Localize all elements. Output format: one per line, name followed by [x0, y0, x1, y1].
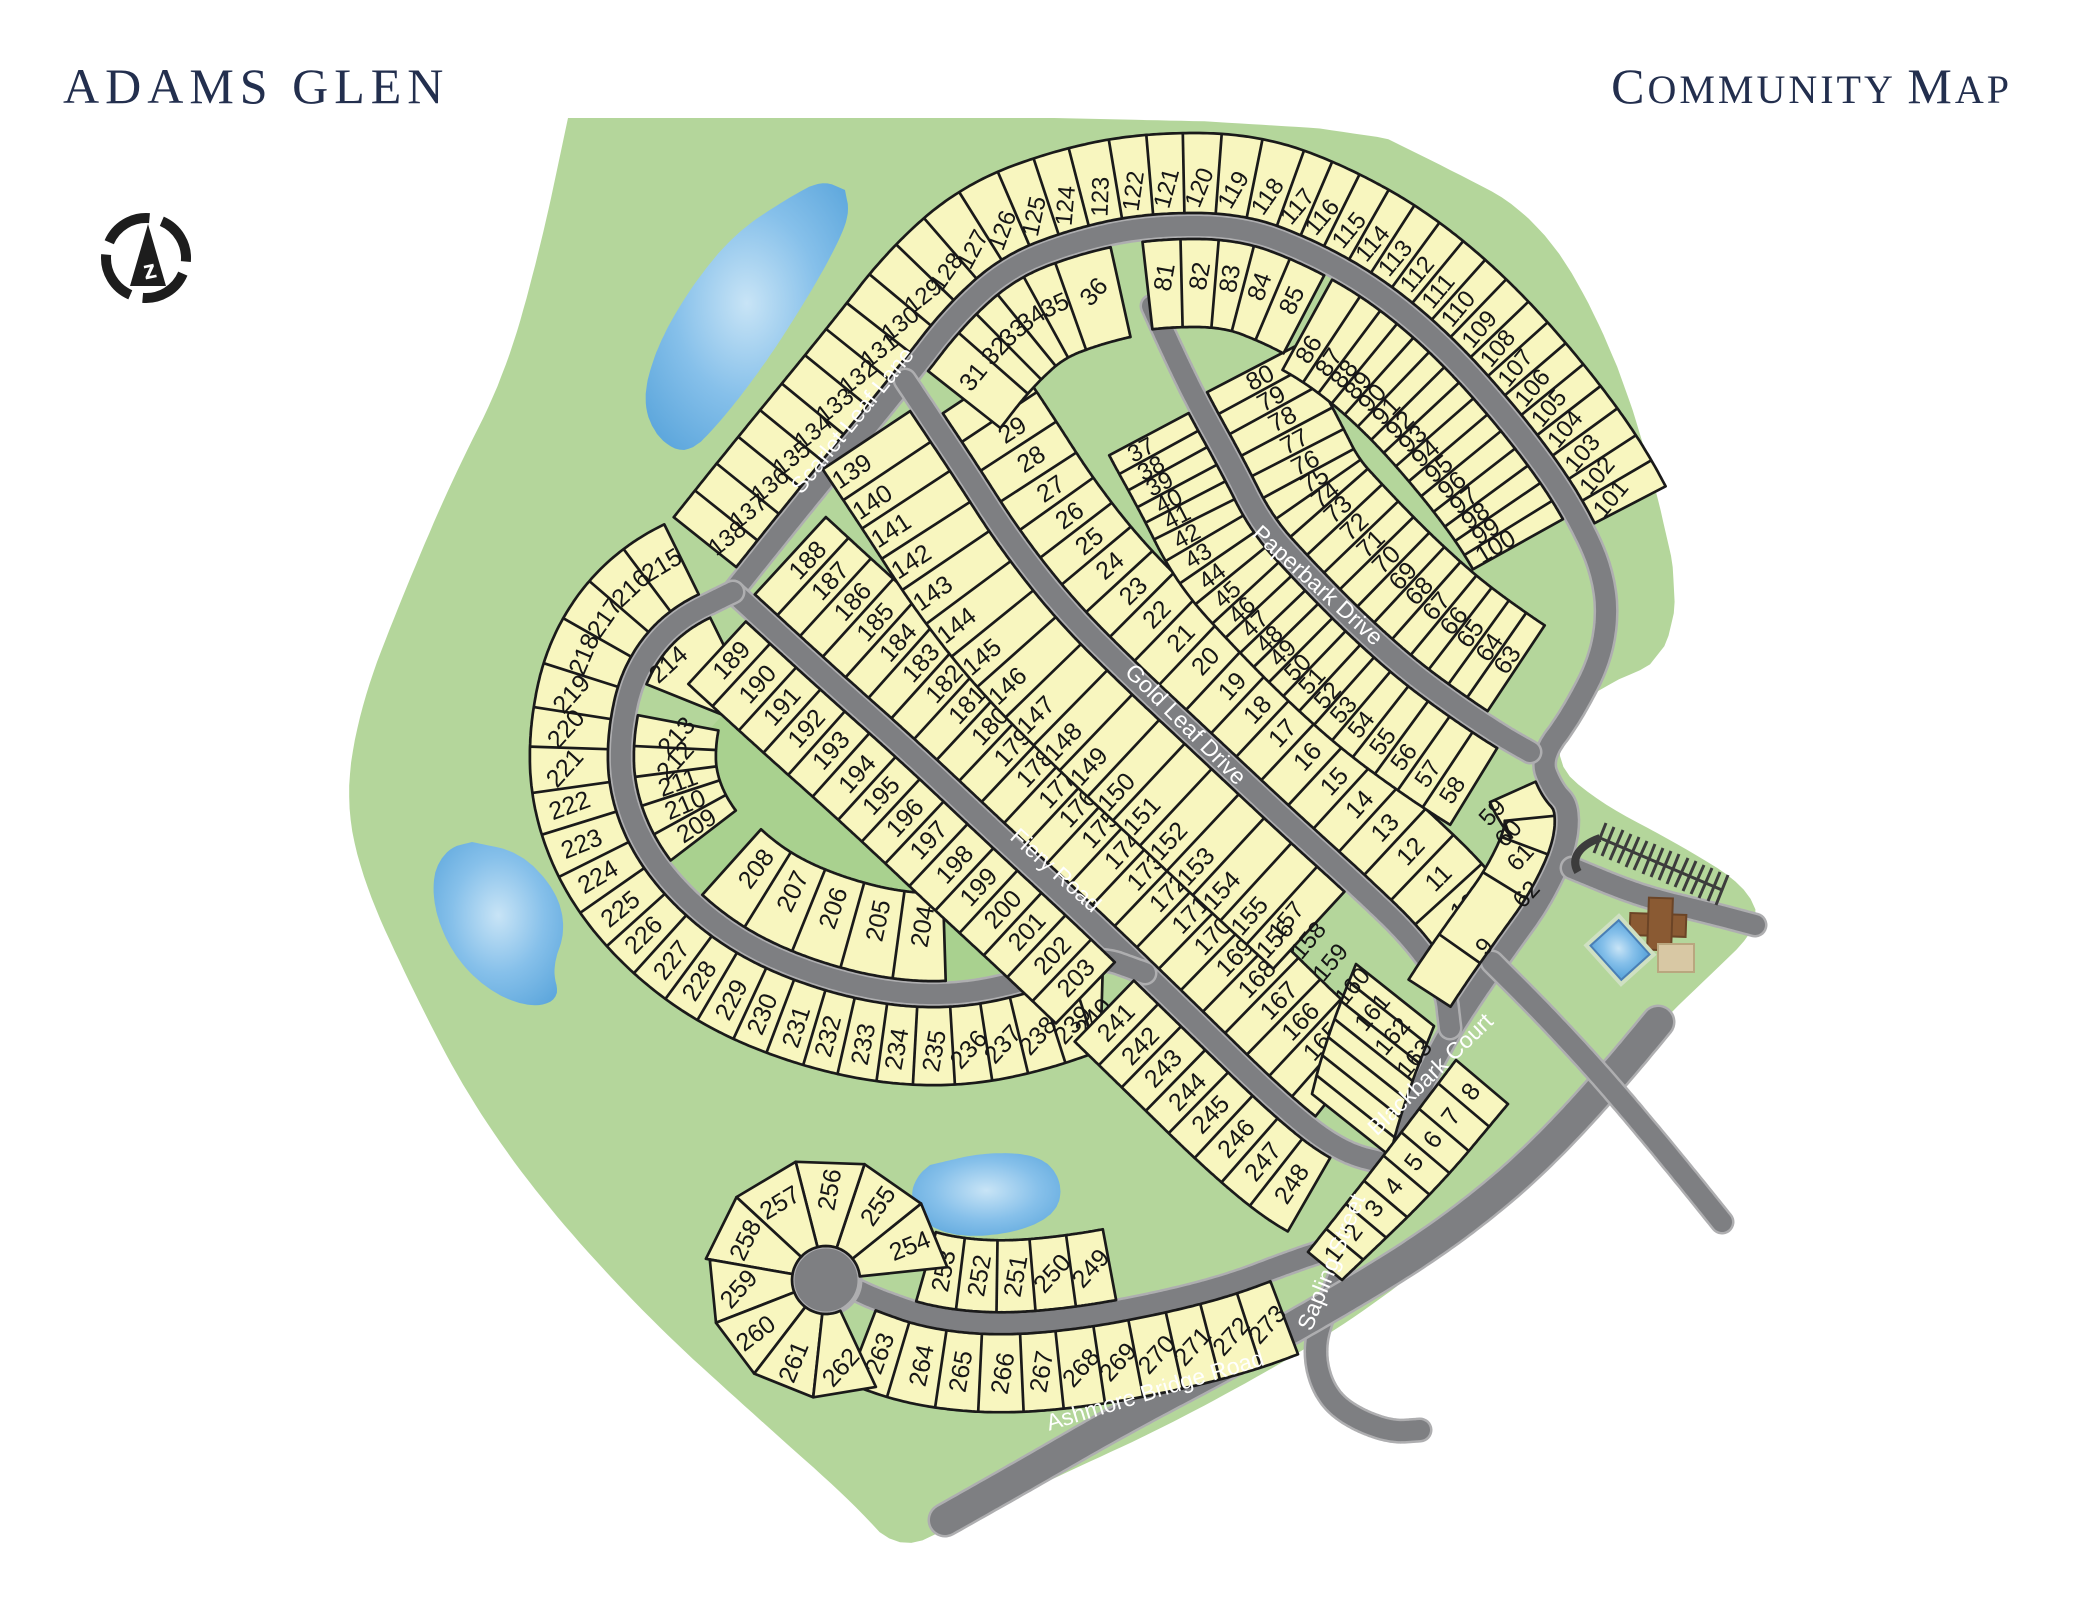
svg-text:122: 122	[1118, 169, 1150, 212]
svg-text:123: 123	[1087, 176, 1115, 217]
svg-text:ADAMS GLEN: ADAMS GLEN	[63, 58, 449, 114]
svg-text:81: 81	[1148, 261, 1180, 293]
svg-text:82: 82	[1184, 260, 1216, 292]
svg-text:83: 83	[1214, 263, 1246, 295]
svg-text:124: 124	[1051, 185, 1081, 227]
svg-text:COMMUNITY MAP: COMMUNITY MAP	[1611, 58, 2012, 114]
